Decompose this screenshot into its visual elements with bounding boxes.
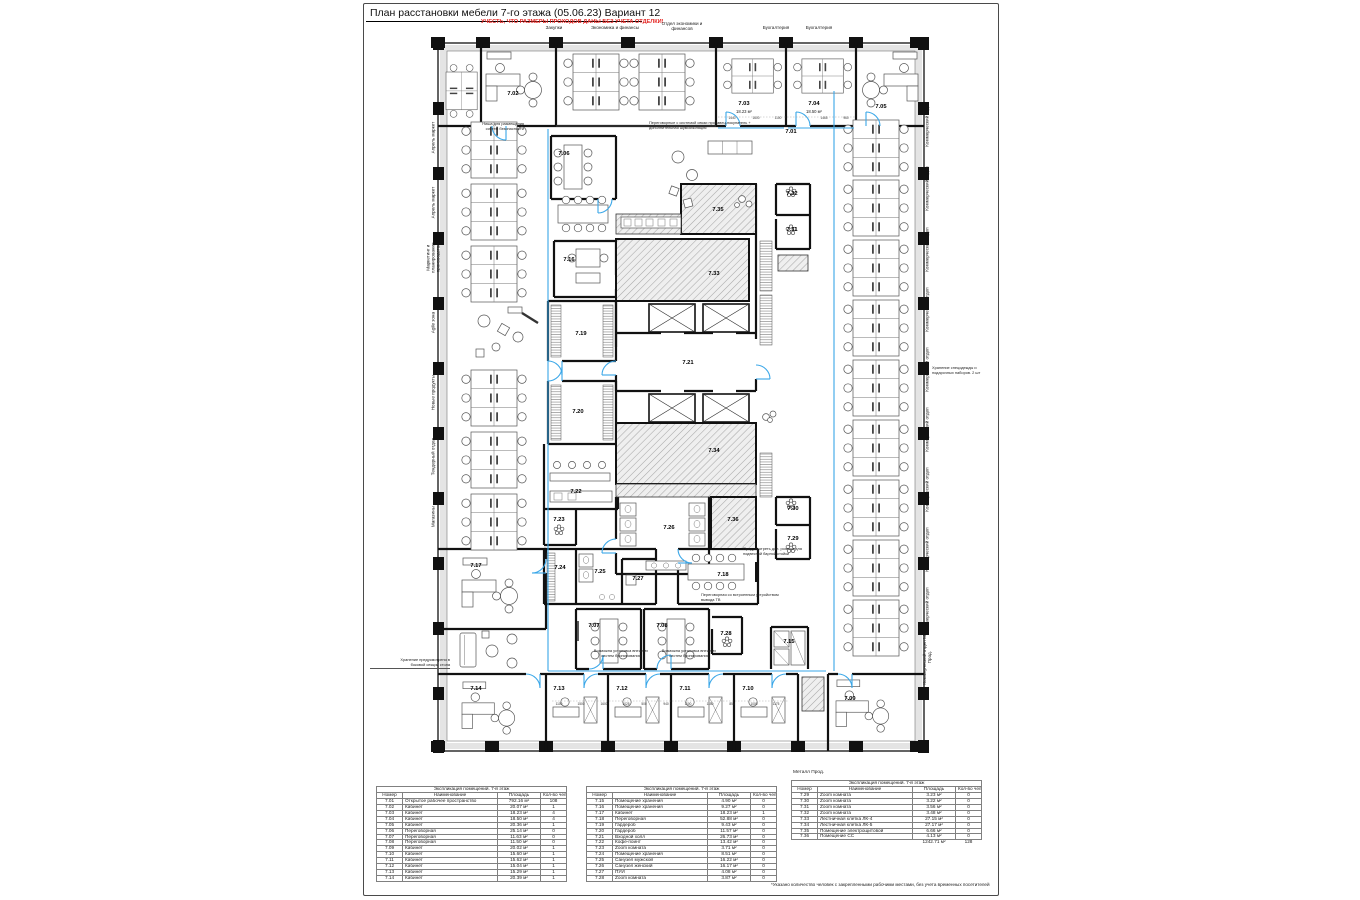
room-label: 7.33 (708, 271, 720, 277)
dimension-label: 960 (843, 116, 849, 120)
room-label: 7.22 (570, 489, 581, 495)
dimension-label: 1100 (775, 116, 782, 120)
room-label: 7.03 (738, 101, 750, 107)
table-total-row: 1242.71 м²128 (792, 840, 982, 846)
room-label: 7.18 (717, 572, 729, 578)
room-label: 7.11 (680, 686, 692, 692)
metall-prod-label: Металл Прод. (793, 770, 824, 775)
room-label: 7.30 (787, 506, 798, 512)
room-label: 7.20 (572, 409, 583, 415)
room-label: 7.09 (844, 696, 856, 702)
explication-table: Экспликация помещений. 7-й этажНомерНаим… (376, 786, 567, 882)
annotation: Переговорная со встроенным устройством в… (701, 593, 815, 602)
dimension-label: 1500 (577, 702, 584, 706)
annotation: Предусмотреть доп. розетки для подвесной… (743, 547, 811, 556)
annotation: Переговорные с системой связи продавец-п… (649, 121, 799, 130)
elevators (649, 304, 749, 422)
room-area-label: 18.23 м² (736, 109, 753, 114)
explication-table-2: Экспликация помещений. 7-й этажНомерНаим… (586, 786, 776, 882)
room-label: 7.06 (558, 151, 570, 157)
room-label: 7.16 (563, 257, 575, 263)
table-row: 7.14Кабинет20.39 м²1 (377, 876, 567, 882)
room-label: 7.02 (507, 91, 518, 97)
room-label: 7.08 (656, 623, 668, 629)
dimension-label: 1000 (750, 702, 757, 706)
dimension-label: 1465 (820, 116, 827, 120)
dimension-label: 1150 (707, 702, 714, 706)
annotation: Хранение предусмотрено в боковой секции … (370, 658, 450, 669)
dimension-label: 1175 (773, 702, 780, 706)
dimension-label: 940 (663, 702, 669, 706)
room-label: 7.10 (742, 686, 753, 692)
room-label: 7.05 (875, 104, 887, 110)
dimension-label: 850 (729, 702, 735, 706)
room-label: 7.12 (616, 686, 627, 692)
room-label: 7.28 (720, 631, 732, 637)
room-label: 7.07 (588, 623, 599, 629)
annotation: Возможна установка внешних систем бронир… (657, 649, 721, 658)
room-label: 7.23 (553, 517, 565, 523)
room-label: 7.17 (470, 563, 481, 569)
room-label: 7.25 (594, 569, 606, 575)
room-label: 7.21 (682, 360, 694, 366)
room-label: 7.14 (470, 686, 482, 692)
room-label: 7.04 (808, 101, 820, 107)
sheet-frame: План расстановки мебели 7-го этажа (05.0… (363, 3, 999, 896)
annotation: Возможна установка внешних систем бронир… (589, 649, 653, 658)
annotation: Хранение спецодежды и подарочных наборов… (932, 366, 994, 375)
room-area-label: 18.50 м² (806, 109, 823, 114)
room-label: 7.29 (787, 536, 799, 542)
annotation: Ниша для размещения систем безопасности (458, 122, 524, 131)
dimension-label: 1100 (685, 702, 692, 706)
room-label: 7.32 (786, 191, 797, 197)
dimension-label: 1100 (556, 702, 563, 706)
room-label: 7.13 (553, 686, 565, 692)
explication-table: Экспликация помещений. 7-й этажНомерНаим… (791, 780, 982, 845)
room-area-labels: 18.23 м²18.50 м² (736, 109, 823, 114)
dimension-label: 1600 (752, 116, 759, 120)
footnote: *Указано количество человек с закрепленн… (771, 882, 990, 887)
explication-table-3: Экспликация помещений. 7-й этажНомерНаим… (791, 780, 981, 845)
room-label: 7.35 (712, 207, 724, 213)
table-row: 7.28Zoom комната3.87 м²0 (587, 876, 777, 882)
room-label: 7.26 (663, 525, 675, 531)
explication-table-1: Экспликация помещений. 7-й этажНомерНаим… (376, 786, 566, 882)
room-label: 7.34 (708, 448, 720, 454)
room-label: 7.15 (783, 639, 795, 645)
dimension-label: 1600 (600, 702, 607, 706)
room-label: 7.19 (575, 331, 587, 337)
dimension-label: 1025 (622, 702, 629, 706)
room-label: 7.24 (554, 565, 566, 571)
explication-table: Экспликация помещений. 7-й этажНомерНаим… (586, 786, 777, 882)
room-label: 7.36 (727, 517, 739, 523)
dimension-label: 500 (641, 702, 647, 706)
room-label: 7.31 (786, 227, 798, 233)
room-label: 7.27 (632, 576, 643, 582)
